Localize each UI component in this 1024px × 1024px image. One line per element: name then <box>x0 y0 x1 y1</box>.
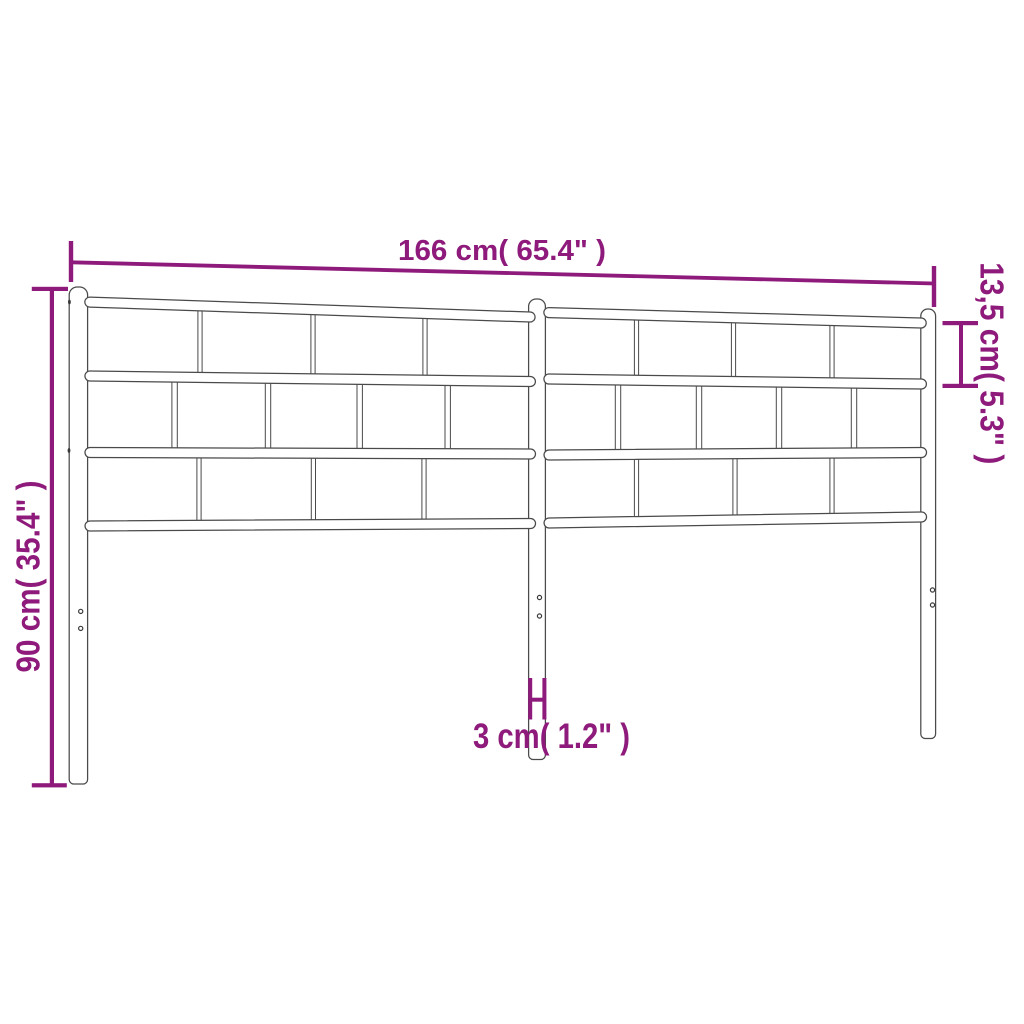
svg-text:3 cm( 1.2" ): 3 cm( 1.2" ) <box>473 717 630 756</box>
svg-text:90 cm( 35.4" ): 90 cm( 35.4" ) <box>10 481 47 673</box>
svg-text:13,5 cm( 5.3" ): 13,5 cm( 5.3" ) <box>973 262 1010 464</box>
svg-text:166 cm( 65.4" ): 166 cm( 65.4" ) <box>398 234 606 266</box>
